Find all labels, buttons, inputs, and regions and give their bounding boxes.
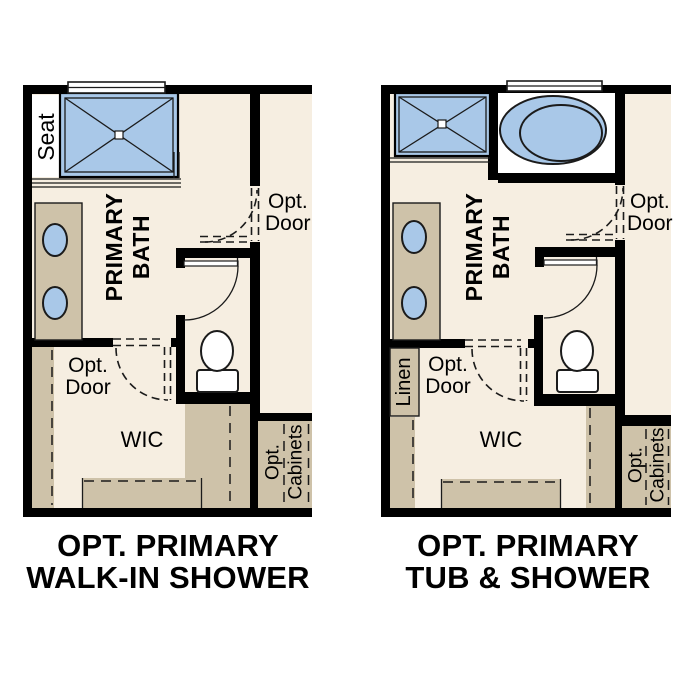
linen-label: Linen (393, 358, 415, 407)
vanity-counter (35, 203, 82, 340)
floorplan-walk-in-shower: Seat PRIMARY BATH Opt. Door Opt. Door WI… (23, 82, 312, 595)
opt-door-label-line1: Opt. (68, 354, 108, 377)
wic-shelf-bottom (441, 479, 561, 508)
wall-segment (534, 394, 625, 406)
wic-shelf-right (586, 406, 615, 508)
tub (498, 93, 615, 173)
cabinets-label-line2: Cabinets (286, 425, 307, 500)
wall-segment (622, 415, 671, 426)
wall-segment (498, 173, 615, 183)
wall-segment (176, 248, 260, 258)
vanity (35, 203, 82, 340)
floorplans-canvas: Seat PRIMARY BATH Opt. Door Opt. Door WI… (0, 0, 687, 687)
opt-door-label-line1: Opt. (428, 353, 468, 376)
wic-shelf-bottom (82, 478, 202, 508)
plan-caption-line2: TUB & SHOWER (405, 560, 650, 595)
opt-door-label-line2: Door (627, 212, 673, 235)
cabinets-label-line1: Opt. (263, 444, 284, 480)
window (507, 81, 602, 91)
sink (402, 287, 426, 319)
sink (402, 221, 426, 253)
wic-label: WIC (121, 427, 164, 452)
plan-caption-line1: OPT. PRIMARY (417, 528, 639, 563)
wall-segment (535, 247, 625, 257)
room-label-line2: BATH (488, 215, 514, 279)
wall-segment (23, 508, 312, 517)
wall-segment (535, 247, 544, 267)
window (68, 82, 165, 93)
room-label-line2: BATH (128, 215, 154, 279)
toilet-tank (197, 370, 238, 392)
sink (43, 287, 67, 319)
vanity (393, 203, 440, 340)
wic-label: WIC (480, 427, 523, 452)
sink (43, 224, 67, 256)
wall-segment (258, 413, 312, 421)
wall-segment (615, 85, 625, 185)
seat-label: Seat (33, 113, 59, 161)
door-leaf (544, 260, 597, 265)
toilet-bowl (201, 331, 233, 371)
opt-door-label-line2: Door (425, 375, 471, 398)
wall-segment (381, 508, 671, 517)
shower (390, 93, 490, 162)
floorplan-sheet: Seat PRIMARY BATH Opt. Door Opt. Door WI… (0, 0, 687, 687)
wall-segment (250, 85, 260, 186)
opt-door-label-line1: Opt. (630, 190, 670, 213)
plan-caption-line1: OPT. PRIMARY (57, 528, 279, 563)
toilet-tank (557, 370, 598, 392)
shower-drain (115, 131, 123, 139)
opt-door-label-line2: Door (265, 212, 311, 235)
wall-segment (23, 85, 32, 517)
plan-caption-line2: WALK-IN SHOWER (26, 560, 310, 595)
wall-segment (534, 315, 543, 403)
opt-door-label-line1: Opt. (268, 190, 308, 213)
opt-door-label-line2: Door (65, 376, 111, 399)
wic-shelf-left (32, 347, 54, 508)
wic-shelf-left (390, 417, 415, 508)
toilet-bowl (561, 331, 593, 371)
wall-segment (176, 315, 185, 403)
door-leaf (184, 261, 238, 266)
shower-drain (438, 120, 446, 128)
floorplan-tub-shower: Linen PRIMARY BATH Opt. Door Opt. Door W… (381, 81, 673, 595)
wall-segment (381, 85, 390, 517)
wall-segment (176, 392, 260, 404)
cabinets-label-line2: Cabinets (648, 428, 669, 503)
cabinets-label-line1: Opt. (626, 447, 647, 483)
room-label-line1: PRIMARY (101, 193, 127, 302)
room-label-line1: PRIMARY (461, 193, 487, 302)
